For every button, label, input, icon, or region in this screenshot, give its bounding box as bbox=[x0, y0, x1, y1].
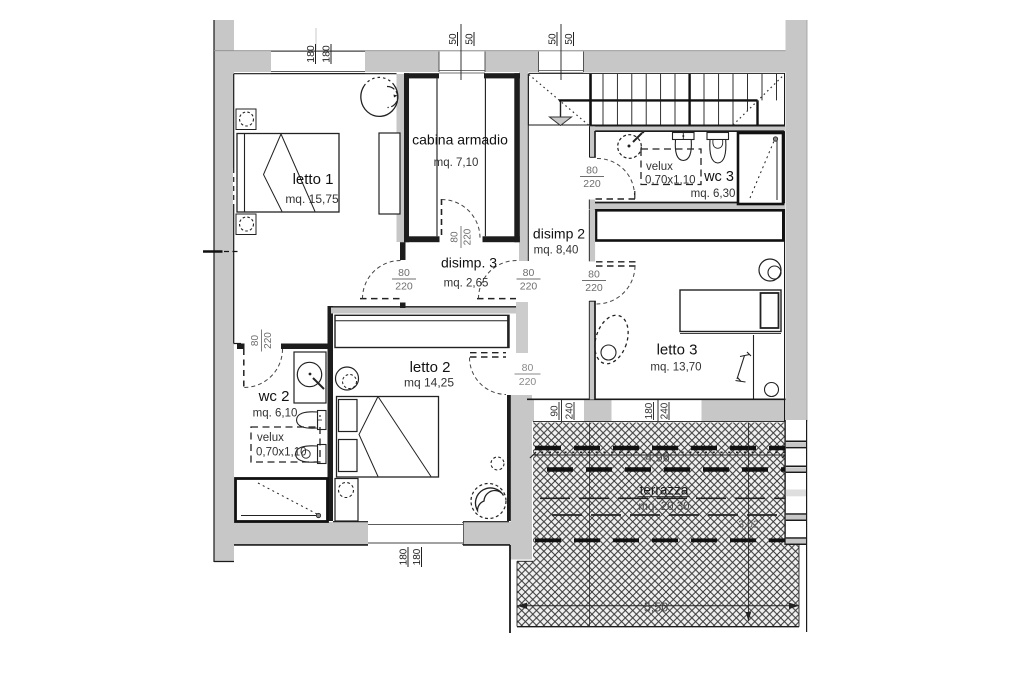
svg-text:mq. 15,75: mq. 15,75 bbox=[285, 192, 339, 206]
svg-text:mq. 13,70: mq. 13,70 bbox=[650, 362, 701, 374]
svg-text:letto 3: letto 3 bbox=[657, 342, 698, 359]
svg-text:mq. 20,30: mq. 20,30 bbox=[638, 501, 689, 513]
svg-text:velux: velux bbox=[257, 432, 284, 444]
svg-text:220: 220 bbox=[263, 332, 274, 349]
svg-text:wc 2: wc 2 bbox=[258, 388, 290, 405]
svg-text:velux: velux bbox=[646, 161, 673, 173]
svg-text:4,96: 4,96 bbox=[645, 451, 669, 465]
svg-text:80: 80 bbox=[250, 335, 261, 347]
svg-text:wc 3: wc 3 bbox=[703, 169, 734, 185]
svg-text:220: 220 bbox=[463, 228, 474, 245]
svg-text:mq 14,25: mq 14,25 bbox=[404, 376, 454, 390]
svg-text:letto 1: letto 1 bbox=[293, 171, 334, 188]
svg-text:220: 220 bbox=[583, 178, 601, 190]
svg-text:220: 220 bbox=[395, 281, 413, 293]
svg-text:220: 220 bbox=[519, 376, 537, 388]
svg-text:disimp. 3: disimp. 3 bbox=[441, 255, 497, 271]
svg-text:80: 80 bbox=[523, 267, 535, 279]
svg-text:terrazza: terrazza bbox=[640, 483, 689, 498]
svg-text:disimp 2: disimp 2 bbox=[533, 226, 585, 242]
svg-text:80: 80 bbox=[398, 267, 410, 279]
svg-text:mq. 8,40: mq. 8,40 bbox=[534, 245, 579, 257]
svg-text:80: 80 bbox=[586, 165, 598, 177]
svg-text:mq. 7,10: mq. 7,10 bbox=[434, 157, 479, 169]
svg-text:0,70x1,10: 0,70x1,10 bbox=[256, 447, 307, 459]
svg-text:letto 2: letto 2 bbox=[410, 359, 451, 376]
svg-text:mq. 6,30: mq. 6,30 bbox=[691, 188, 736, 200]
svg-text:5,50: 5,50 bbox=[644, 601, 668, 615]
svg-text:220: 220 bbox=[520, 281, 538, 293]
svg-text:220: 220 bbox=[585, 282, 603, 294]
svg-text:80: 80 bbox=[522, 362, 534, 374]
svg-text:mq. 2,65: mq. 2,65 bbox=[444, 278, 489, 290]
svg-text:80: 80 bbox=[450, 231, 461, 243]
svg-text:80: 80 bbox=[588, 269, 600, 281]
svg-text:0,70x1,10: 0,70x1,10 bbox=[645, 175, 696, 187]
svg-text:mq. 6,10: mq. 6,10 bbox=[253, 408, 298, 420]
svg-text:3,02: 3,02 bbox=[738, 519, 759, 531]
svg-text:cabina armadio: cabina armadio bbox=[412, 132, 508, 148]
